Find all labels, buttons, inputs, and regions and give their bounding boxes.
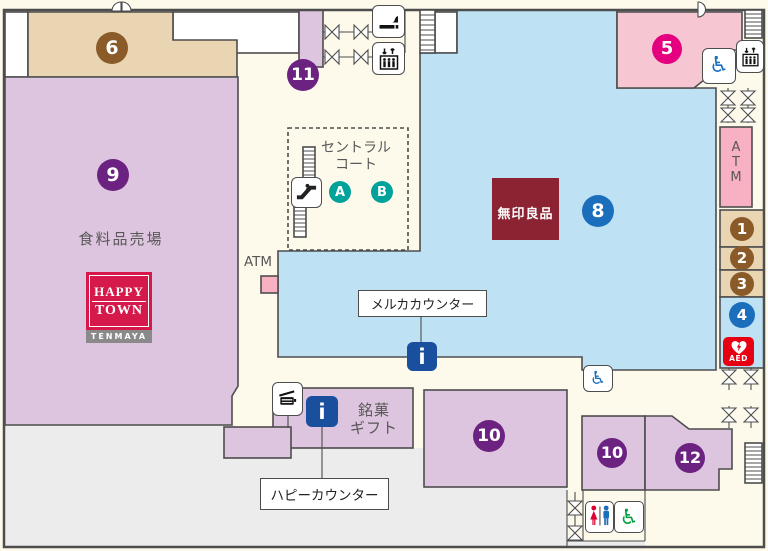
- atm-strip-label: A T M: [722, 140, 750, 185]
- wheelchair-glyph: ♿: [709, 55, 729, 77]
- gift-label-line2: ギフト: [344, 419, 404, 437]
- happy-town-logo: HAPPY TOWN: [86, 272, 152, 330]
- area-9-food-shape: [5, 77, 238, 425]
- escalator-ramp-icon: [294, 207, 306, 237]
- marker-10b: 10: [597, 438, 627, 468]
- wheelchair-icon: ♿: [702, 48, 736, 84]
- muji-store-label: 無印良品: [497, 203, 553, 222]
- meruka-counter-label: メルカカウンター: [358, 290, 487, 317]
- restroom-icon: [585, 501, 614, 533]
- marker-5: 5: [652, 34, 682, 64]
- info-icon: i: [306, 396, 338, 427]
- tenmaya-bar: TENMAYA: [86, 330, 152, 343]
- marker-11: 11: [287, 59, 319, 91]
- floor-map: 6 9 11 5 8 10 10 12 1 2 3 4 A B 食料品売場 セン…: [0, 0, 768, 551]
- elevator-icon: [736, 40, 764, 73]
- accessible-toilet-icon: ♿: [614, 501, 644, 533]
- food-hall-label: 食料品売場: [48, 230, 194, 248]
- smoking-area-icon: [372, 5, 405, 38]
- marker-3: 3: [730, 272, 754, 296]
- copier-icon: [272, 382, 303, 416]
- marker-6: 6: [96, 32, 128, 64]
- muji-store-box: 無印良品: [492, 178, 559, 240]
- central-court-label-line2: コート: [296, 157, 416, 174]
- marker-a: A: [329, 181, 351, 203]
- atm-letter-t: T: [732, 155, 740, 170]
- wheelchair-glyph: ♿: [590, 370, 606, 388]
- elevator-icon: [372, 42, 405, 75]
- marker-9: 9: [97, 159, 129, 191]
- wheelchair-icon: ♿: [583, 365, 613, 392]
- atm-letter-a: A: [732, 140, 741, 155]
- marker-4: 4: [729, 302, 755, 328]
- marker-1: 1: [730, 217, 754, 241]
- central-court-label-line1: セントラル: [296, 140, 416, 157]
- info-icon: i: [407, 342, 437, 371]
- aed-label: AED: [729, 354, 748, 363]
- logo-line1: HAPPY: [92, 284, 146, 302]
- escalator-icon: [291, 177, 322, 208]
- counter-annex-shape: [224, 427, 291, 458]
- aed-icon: AED: [723, 337, 754, 366]
- stairs-icon: [745, 443, 762, 483]
- atm-side-label: ATM: [240, 254, 276, 270]
- marker-b: B: [371, 181, 393, 203]
- happy-town-logo-inner: HAPPY TOWN: [89, 275, 149, 327]
- stairs-icon: [745, 10, 762, 38]
- gift-label-line1: 銘菓: [344, 401, 404, 419]
- backyard-box-stairs: [435, 12, 457, 53]
- happy-counter-label: ハピーカウンター: [260, 478, 389, 510]
- wheelchair-glyph: ♿: [620, 507, 639, 528]
- marker-2: 2: [730, 246, 754, 270]
- marker-12: 12: [675, 443, 705, 473]
- atm-small-shape: [261, 276, 278, 293]
- stairs-icon: [420, 10, 435, 53]
- backyard-box-left: [5, 12, 28, 77]
- marker-10: 10: [473, 420, 505, 452]
- logo-line2: TOWN: [95, 303, 143, 319]
- marker-8: 8: [582, 195, 614, 227]
- atm-letter-m: M: [730, 170, 741, 185]
